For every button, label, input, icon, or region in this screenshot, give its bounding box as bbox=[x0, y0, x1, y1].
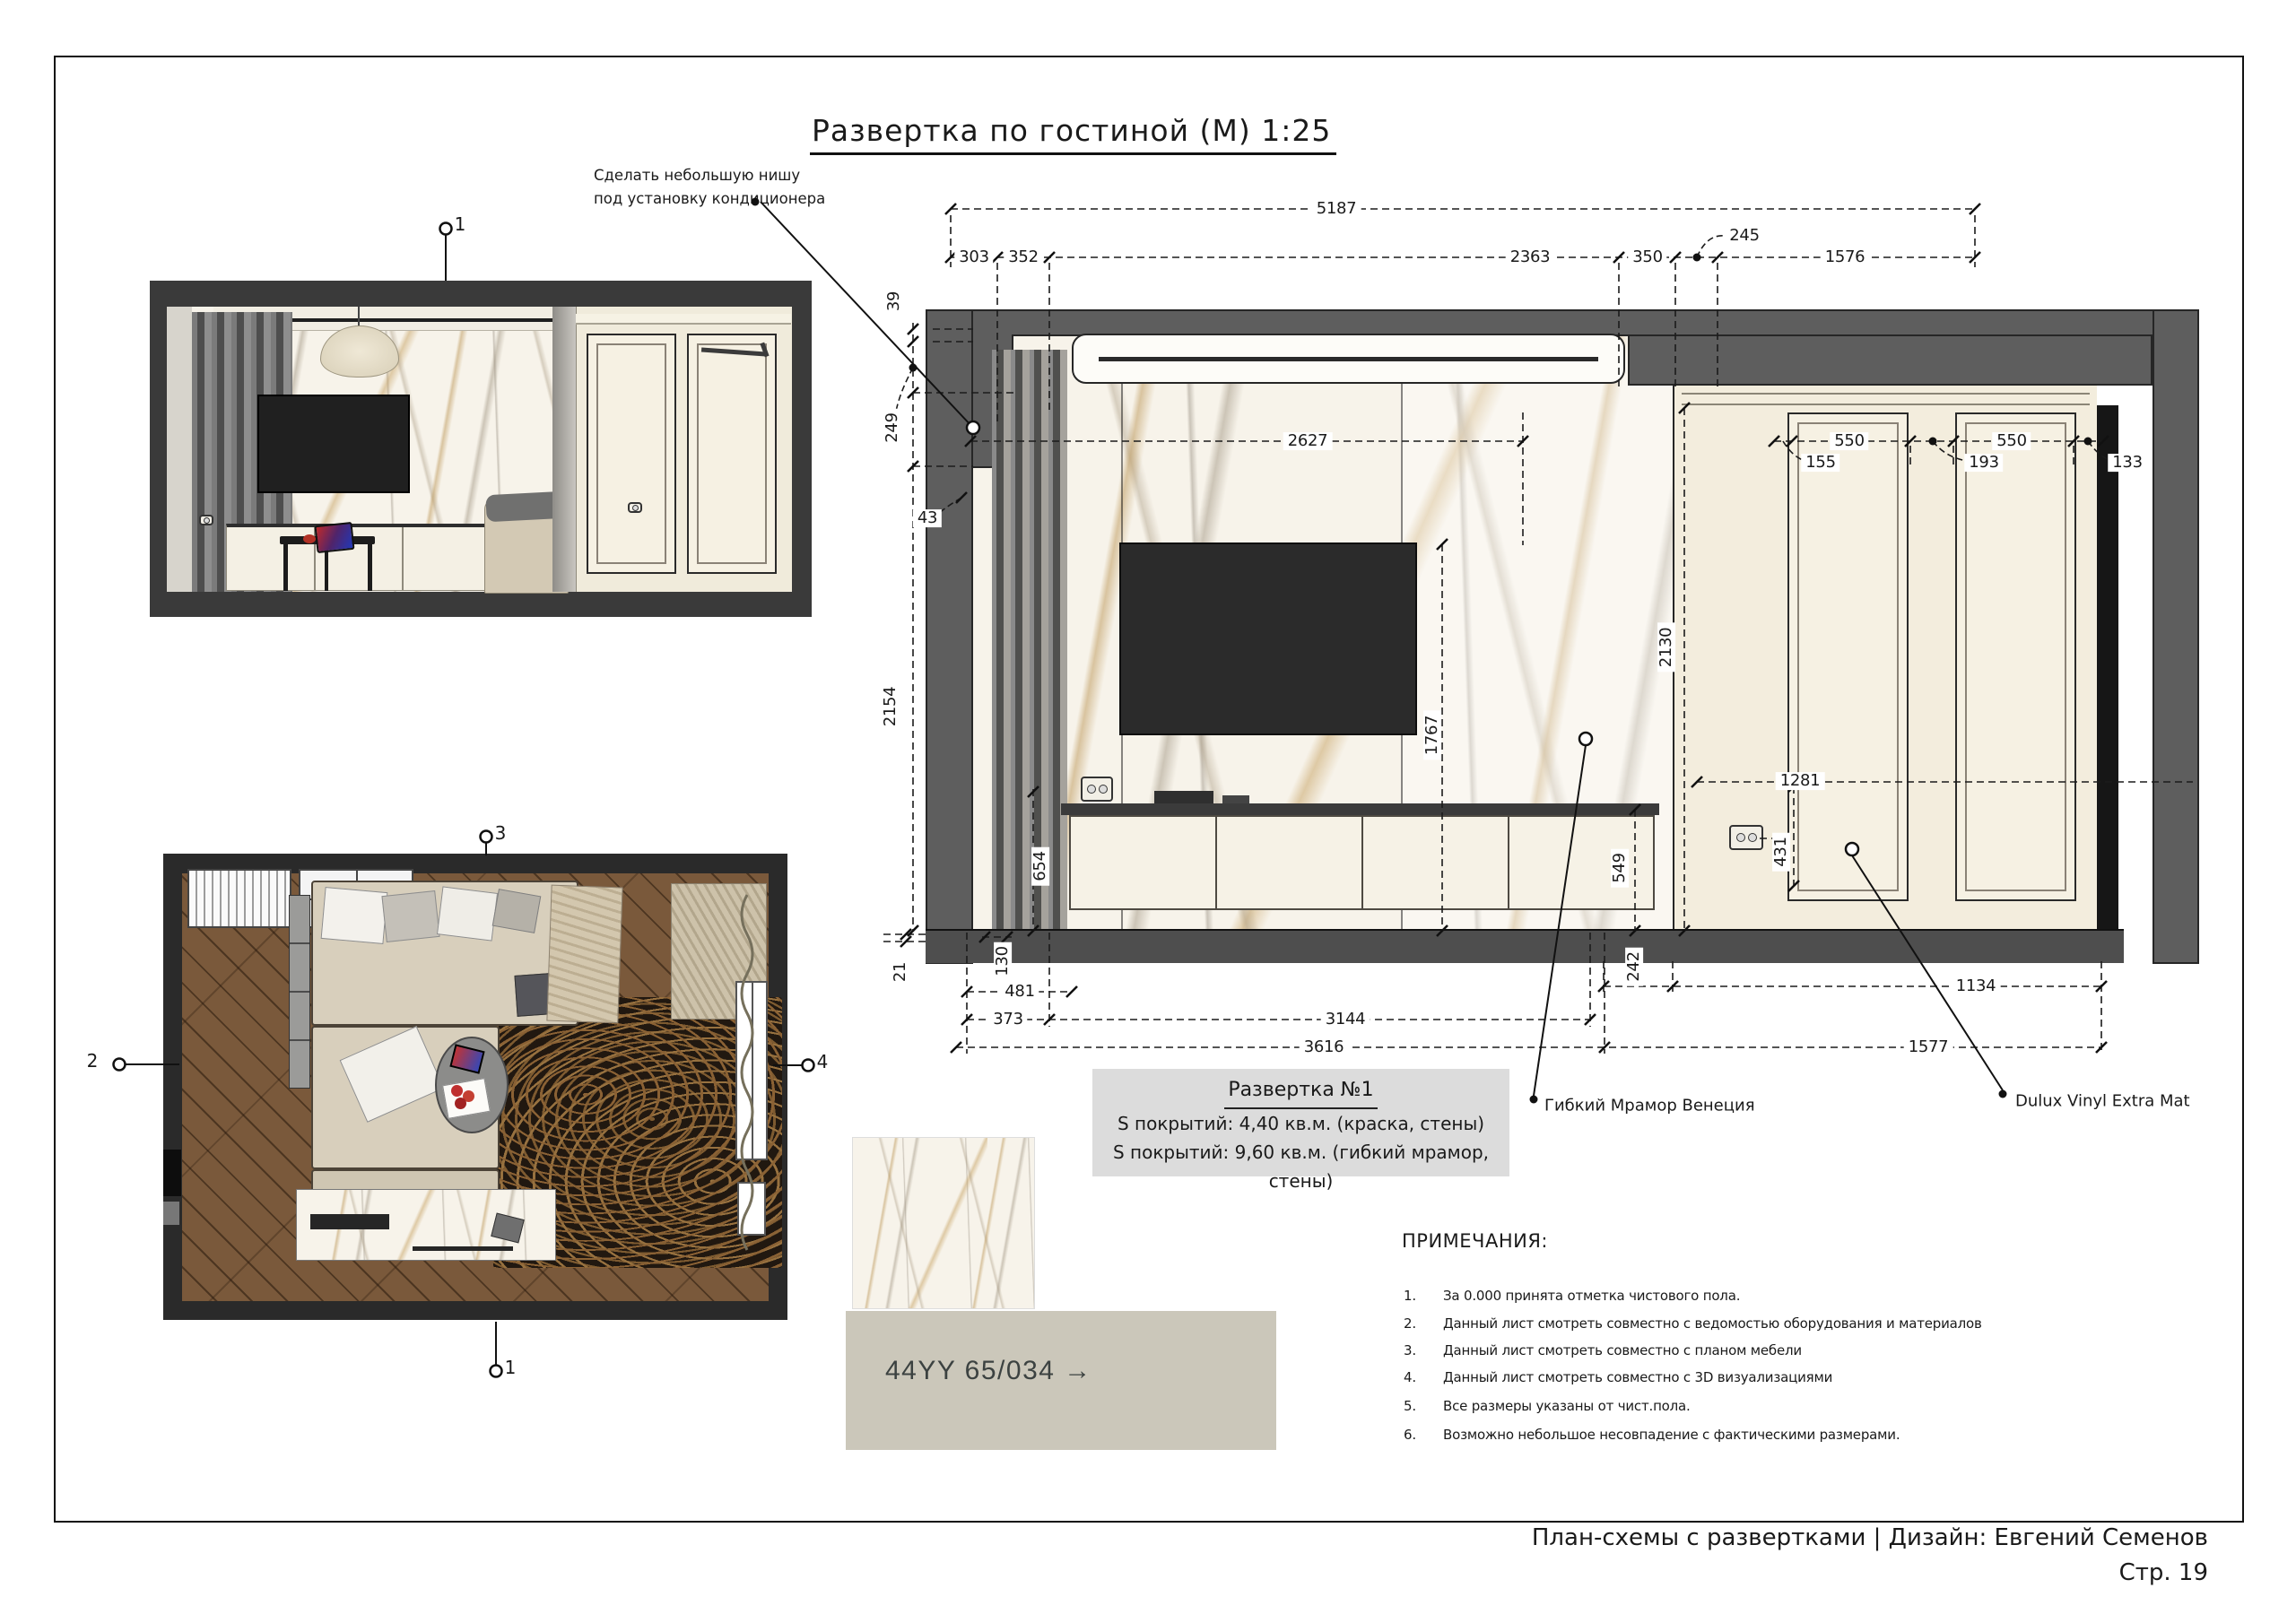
elev-curtain-rod bbox=[1099, 357, 1598, 361]
paint-swatch: 44YY 65/034 → bbox=[846, 1311, 1276, 1450]
dim-label: 1577 bbox=[1904, 1038, 1953, 1056]
dim-label: 481 bbox=[1000, 983, 1039, 1001]
footer: План-схемы с развертками | Дизайн: Евген… bbox=[1381, 1524, 2208, 1586]
elev-tv bbox=[1119, 542, 1417, 735]
elev-curtain bbox=[992, 350, 1067, 931]
plan-wall-niche bbox=[163, 1150, 181, 1196]
dim-label: 155 bbox=[1801, 454, 1839, 472]
render-window bbox=[167, 307, 194, 592]
plan-slim-cabinet bbox=[289, 895, 310, 1089]
elevation-render bbox=[150, 281, 812, 617]
elev-console-divider bbox=[1215, 817, 1217, 908]
plan-wall-mark bbox=[163, 1202, 179, 1225]
footer-title: План-схемы с развертками | Дизайн: Евген… bbox=[1381, 1524, 2208, 1551]
elevation-info-box: Развертка №1 S покрытий: 4,40 кв.м. (кра… bbox=[1092, 1069, 1509, 1176]
dim-label: 373 bbox=[988, 1011, 1027, 1028]
dim-label: 1281 bbox=[1776, 772, 1825, 790]
render-corner-curtain bbox=[552, 307, 576, 592]
dim-label: 352 bbox=[1004, 248, 1042, 266]
info-line1: S покрытий: 4,40 кв.м. (краска, стены) bbox=[1092, 1109, 1509, 1138]
elev-wardrobe-outlet bbox=[1729, 825, 1763, 850]
note-item: 1.За 0.000 принята отметка чистового пол… bbox=[1404, 1288, 1740, 1304]
dim-label: 654 bbox=[1031, 846, 1049, 885]
plan-pillow bbox=[321, 887, 388, 944]
render-tv-console bbox=[226, 524, 491, 591]
dim-label: 2627 bbox=[1283, 432, 1333, 450]
dim-label: 350 bbox=[1628, 248, 1666, 266]
elev-outlet bbox=[1081, 777, 1113, 802]
dim-label: 3144 bbox=[1321, 1011, 1370, 1028]
plan-pillow bbox=[381, 890, 439, 942]
plan-throw-blanket bbox=[546, 885, 622, 1024]
elev-soundbar bbox=[1154, 791, 1213, 803]
note-item: 2.Данный лист смотреть совместно с ведом… bbox=[1404, 1315, 1982, 1332]
marble-swatch bbox=[852, 1137, 1035, 1309]
render-wardrobe-door-left bbox=[587, 334, 676, 574]
tablet bbox=[314, 522, 354, 553]
dim-label: 249 bbox=[883, 408, 901, 447]
note-item: 6.Возможно небольшое несовпадение с факт… bbox=[1404, 1427, 1900, 1443]
ac-niche-note: Сделать небольшую нишу под установку кон… bbox=[594, 164, 825, 210]
elev-right-pier bbox=[2152, 309, 2199, 964]
paint-code: 44YY 65/034 → bbox=[885, 1356, 1092, 1386]
note-item: 3.Данный лист смотреть совместно с плано… bbox=[1404, 1342, 1802, 1358]
info-title: Развертка №1 bbox=[1224, 1074, 1377, 1109]
dim-label: 133 bbox=[2108, 454, 2146, 472]
dim-label: 1767 bbox=[1423, 711, 1441, 760]
dim-label: 303 bbox=[954, 248, 993, 266]
elev-media-box bbox=[1222, 795, 1249, 803]
side-table-leg bbox=[368, 544, 372, 591]
dim-label: 2363 bbox=[1506, 248, 1555, 266]
dim-label: 1134 bbox=[1952, 977, 2001, 995]
dim-label: 193 bbox=[1964, 454, 2003, 472]
section-marker-label: 2 bbox=[87, 1050, 99, 1072]
dim-label: 245 bbox=[1725, 227, 1763, 245]
plan-fruit bbox=[455, 1098, 466, 1109]
dim-label: 21 bbox=[891, 958, 909, 986]
dim-label: 2130 bbox=[1657, 623, 1675, 673]
elev-wardrobe-crown bbox=[1682, 393, 2090, 405]
side-table-leg bbox=[283, 544, 288, 591]
render-wardrobe-crown bbox=[576, 314, 791, 325]
drawing-sheet: Развертка по гостиной (М) 1:25 Сделать н… bbox=[0, 0, 2296, 1623]
dim-label: 5187 bbox=[1312, 200, 1361, 218]
note-item: 5.Все размеры указаны от чист.пола. bbox=[1404, 1398, 1691, 1414]
render-tv bbox=[257, 395, 410, 493]
render-wardrobe-door-right bbox=[687, 334, 777, 574]
elev-console-divider bbox=[1508, 817, 1509, 908]
elev-console-top bbox=[1061, 803, 1659, 815]
render-outlet bbox=[199, 515, 213, 525]
dim-label: 1576 bbox=[1821, 248, 1870, 266]
elev-ceiling-band bbox=[926, 309, 2199, 336]
dim-label: 549 bbox=[1611, 848, 1629, 887]
dim-label: 3616 bbox=[1300, 1038, 1349, 1056]
plan-window bbox=[735, 981, 768, 1160]
ac-niche-note-line1: Сделать небольшую нишу bbox=[594, 164, 825, 187]
notes-heading: ПРИМЕЧАНИЯ: bbox=[1402, 1230, 1548, 1252]
elev-left-pier bbox=[926, 309, 973, 964]
section-marker-label: 4 bbox=[817, 1051, 829, 1072]
page-title: Развертка по гостиной (М) 1:25 bbox=[810, 113, 1336, 155]
footer-page-number: Стр. 19 bbox=[1381, 1559, 2208, 1586]
elev-wardrobe-door-right bbox=[1955, 412, 2076, 901]
marble-callout-label: Гибкий Мрамор Венеция bbox=[1544, 1097, 1755, 1115]
plan-soundbar bbox=[413, 1246, 513, 1251]
section-marker-label: 3 bbox=[495, 822, 507, 844]
dim-label: 2154 bbox=[882, 682, 900, 732]
note-item: 4.Данный лист смотреть совместно с 3D ви… bbox=[1404, 1369, 1832, 1385]
dim-label: 431 bbox=[1772, 832, 1790, 871]
plan-pillow bbox=[492, 889, 542, 933]
paint-callout-label: Dulux Vinyl Extra Mat bbox=[2015, 1092, 2190, 1111]
plan-radiator bbox=[187, 869, 291, 928]
elev-console-divider bbox=[1361, 817, 1363, 908]
elev-soffit bbox=[1628, 334, 2152, 386]
elev-wardrobe-door-left bbox=[1787, 412, 1909, 901]
elev-floor-band bbox=[926, 929, 2124, 963]
plan-fruit bbox=[451, 1085, 463, 1097]
dim-label: 242 bbox=[1625, 947, 1643, 985]
section-marker-label: 1 bbox=[505, 1357, 517, 1378]
plan-pillow bbox=[437, 886, 498, 941]
section-marker-label: 1 bbox=[455, 213, 466, 235]
render-outlet bbox=[628, 502, 642, 513]
ac-niche-note-line2: под установку кондиционера bbox=[594, 187, 825, 211]
dim-label: 43 bbox=[913, 509, 942, 527]
elev-side-strip bbox=[2097, 405, 2118, 931]
info-line2: S покрытий: 9,60 кв.м. (гибкий мрамор, с… bbox=[1092, 1138, 1509, 1195]
floor-plan bbox=[163, 854, 787, 1320]
dim-label: 550 bbox=[1830, 432, 1868, 450]
red-bowl bbox=[303, 534, 316, 543]
dim-label: 130 bbox=[994, 942, 1012, 980]
dim-label: 39 bbox=[885, 287, 903, 316]
dim-label: 550 bbox=[1992, 432, 2031, 450]
plan-window-small bbox=[737, 1182, 766, 1236]
plan-tv-box bbox=[310, 1214, 389, 1229]
